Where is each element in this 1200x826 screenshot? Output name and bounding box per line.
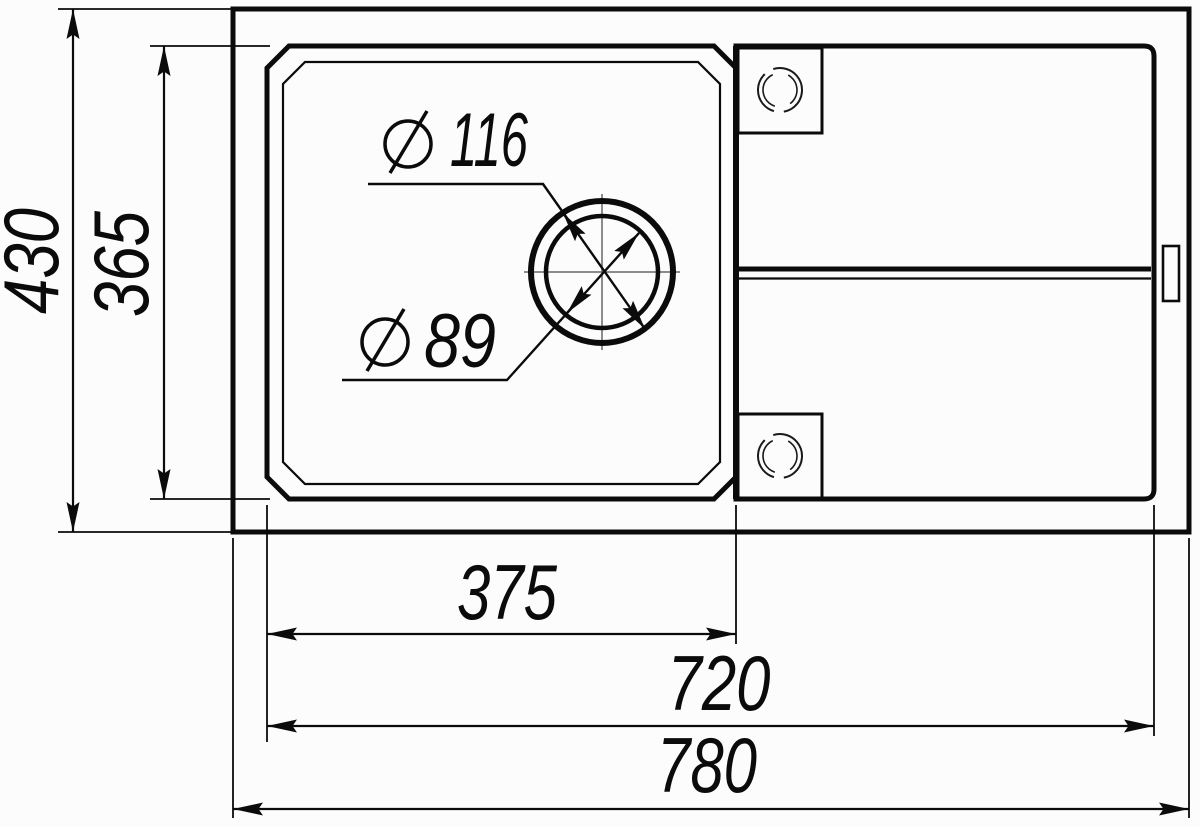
dia116-leader bbox=[368, 184, 645, 329]
dim-375-label: 375 bbox=[457, 548, 557, 636]
drainboard-outline bbox=[736, 46, 1154, 499]
faucet-hole-bottom-circle bbox=[749, 425, 811, 487]
faucet-platform-bottom bbox=[738, 414, 822, 499]
dia89-arrow-sw bbox=[567, 298, 580, 313]
faucet-platform-top bbox=[738, 48, 822, 133]
dim-365-label: 365 bbox=[77, 210, 165, 317]
sink-technical-drawing: 116 89 430 365 375 720 bbox=[0, 0, 1200, 826]
dim-720-label: 720 bbox=[668, 639, 771, 727]
dia116-callout: 116 bbox=[385, 98, 528, 183]
faucet-hole-top-inner-circle bbox=[756, 66, 804, 114]
dia89-callout: 89 bbox=[362, 299, 496, 384]
diameter-icon bbox=[385, 111, 431, 173]
dia89-value: 89 bbox=[424, 299, 496, 384]
dim-430-label: 430 bbox=[0, 208, 75, 314]
faucet-hole-bottom-inner-circle bbox=[756, 432, 804, 480]
diameter-icon bbox=[362, 309, 408, 371]
overflow-notch bbox=[1163, 246, 1179, 301]
faucet-hole-top-circle bbox=[749, 59, 811, 121]
dia116-value: 116 bbox=[450, 98, 528, 183]
drawing-svg: 116 89 430 365 375 720 bbox=[0, 0, 1200, 826]
dim-780-label: 780 bbox=[657, 721, 757, 809]
